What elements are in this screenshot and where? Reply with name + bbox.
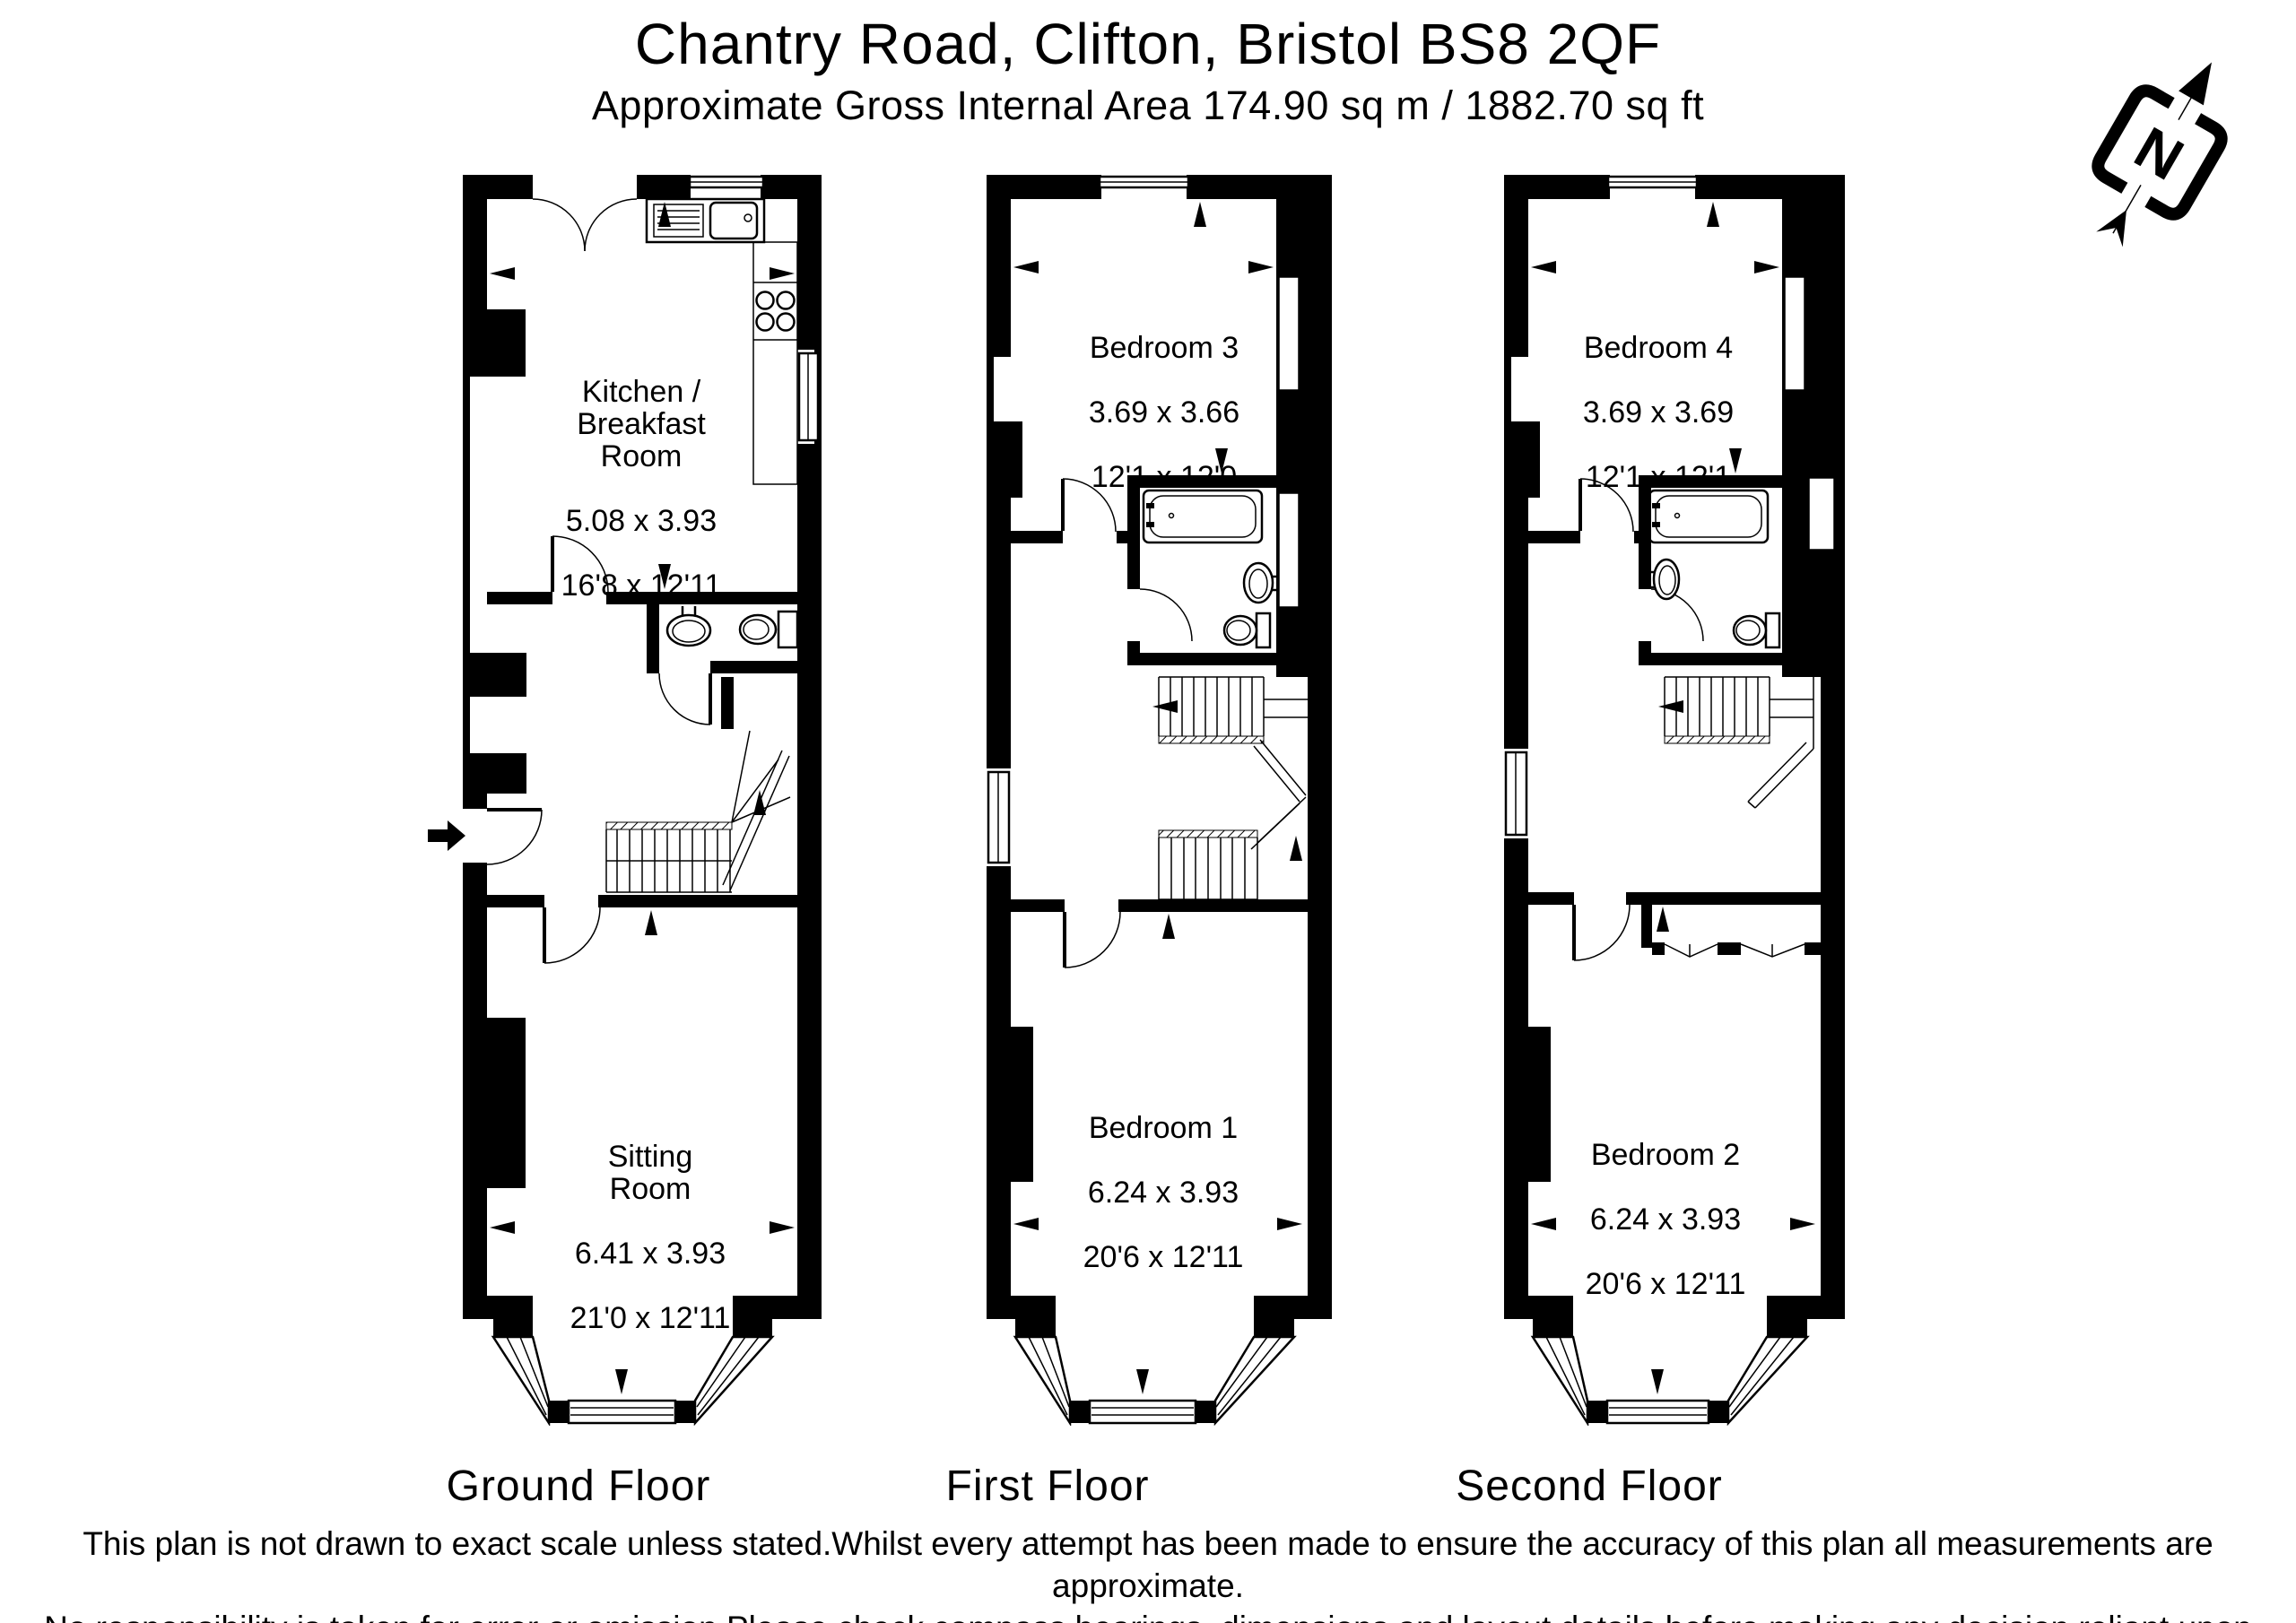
bedroom3-side-window	[1279, 277, 1299, 390]
room-label-bedroom1: Bedroom 1 6.24 x 3.93 20'6 x 12'11	[1083, 1080, 1244, 1306]
stairs-up-arrow-icon	[1290, 836, 1302, 861]
stairs-up-arrow-icon	[753, 790, 766, 815]
landing-window	[988, 772, 1009, 863]
bathroom-toilet	[1734, 613, 1779, 647]
compass-north-letter: N	[2124, 114, 2194, 193]
entry-door	[487, 810, 542, 864]
bedroom4-side-window	[1785, 277, 1805, 390]
french-doors	[533, 199, 637, 251]
entrance-arrow-icon	[428, 820, 465, 851]
bedroom3-top-window	[1100, 177, 1188, 187]
kitchen-counter-hob	[753, 242, 797, 484]
room-label-sitting-room: Sitting Room 6.41 x 3.93 21'0 x 12'11	[565, 1108, 736, 1367]
bathroom-sink	[1648, 560, 1679, 599]
stairs-down-arrow-icon	[1152, 700, 1178, 713]
floor-label-ground: Ground Floor	[447, 1462, 711, 1511]
landing-window	[1506, 752, 1526, 835]
disclaimer: This plan is not drawn to exact scale un…	[0, 1523, 2296, 1623]
bedroom4-top-window	[1608, 177, 1697, 187]
kitchen-top-window	[690, 177, 763, 187]
bathroom-toilet	[1224, 613, 1270, 647]
first-floor-plan: Bedroom 3 3.69 x 3.66 12'1 x 12'0 Bedroo…	[987, 175, 1332, 1426]
bay-window	[987, 1296, 1332, 1423]
bathroom-side-window	[1279, 493, 1299, 607]
room-label-bedroom4: Bedroom 4 3.69 x 3.69 12'1 x 12'1	[1583, 299, 1734, 525]
compass: N	[2054, 7, 2278, 276]
page-subtitle: Approximate Gross Internal Area 174.90 s…	[0, 82, 2296, 129]
page-title: Chantry Road, Clifton, Bristol BS8 2QF	[0, 11, 2296, 77]
second-stairs	[1658, 677, 1813, 808]
disclaimer-line1: This plan is not drawn to exact scale un…	[0, 1523, 2296, 1607]
ground-floor-plan: Kitchen / Breakfast Room 5.08 x 3.93 16'…	[400, 175, 822, 1426]
bedroom1-wall	[1011, 899, 1308, 968]
disclaimer-line2: No responsibility is taken for error or …	[0, 1607, 2296, 1623]
compass-rose: N	[2067, 39, 2254, 264]
bathroom-sink	[1244, 563, 1279, 603]
bathroom-side-window	[1809, 478, 1834, 550]
kitchen-side-window	[799, 353, 818, 440]
ground-stairs	[606, 677, 790, 892]
bedroom2-wall	[1528, 892, 1821, 960]
stairs-down-arrow-icon	[1658, 700, 1683, 713]
room-label-kitchen: Kitchen / Breakfast Room 5.08 x 3.93 16'…	[552, 343, 732, 634]
wc-toilet	[740, 612, 797, 647]
floor-label-first: First Floor	[946, 1462, 1150, 1511]
room-label-bedroom3: Bedroom 3 3.69 x 3.66 12'1 x 12'0	[1089, 299, 1239, 525]
second-floor-plan: Bedroom 4 3.69 x 3.69 12'1 x 12'1 Bedroo…	[1504, 175, 1845, 1426]
floor-label-second: Second Floor	[1456, 1462, 1723, 1511]
first-stairs	[1152, 677, 1308, 899]
floorplan-page: Chantry Road, Clifton, Bristol BS8 2QF A…	[0, 0, 2296, 1623]
room-label-bedroom2: Bedroom 2 6.24 x 3.93 20'6 x 12'11	[1586, 1107, 1746, 1332]
